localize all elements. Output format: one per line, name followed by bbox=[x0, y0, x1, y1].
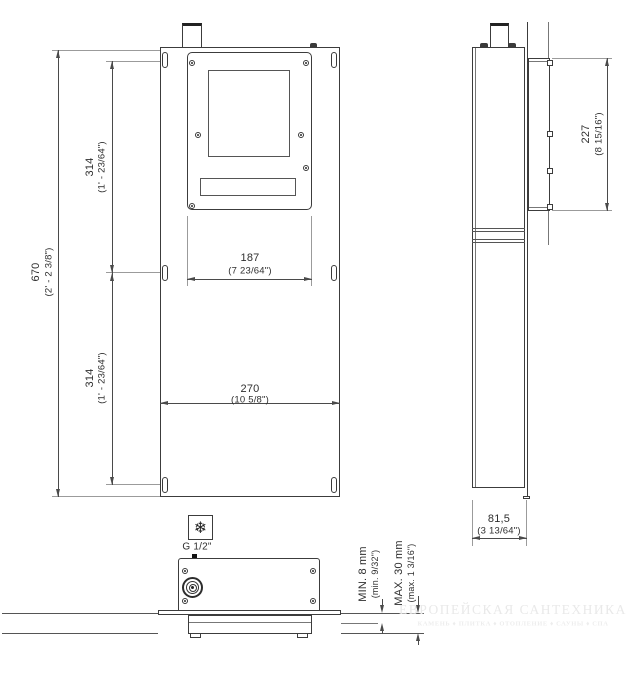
watermark-title: ЕВРОПЕЙСКАЯ САНТЕХНИКА bbox=[399, 602, 627, 618]
dim-arrow bbox=[605, 58, 609, 66]
technical-drawing-canvas: 670 (2' - 2 3/8") 314 (1' - 23/64") 314 … bbox=[0, 0, 643, 674]
plate-inner-line bbox=[529, 61, 549, 62]
dim-line-314-upper bbox=[112, 61, 113, 273]
mounting-slot bbox=[162, 265, 168, 281]
plate-inner-line bbox=[529, 207, 549, 208]
screw bbox=[195, 132, 201, 138]
dim-227-inch: (8 15/16") bbox=[594, 112, 605, 155]
body-joint-line bbox=[472, 228, 525, 229]
water-connection-fitting bbox=[182, 577, 203, 598]
fitting-inner-ring bbox=[189, 584, 197, 592]
fitting-center bbox=[191, 586, 195, 590]
connection-size-label: G 1/2" bbox=[182, 542, 211, 553]
screw bbox=[298, 132, 304, 138]
ext-line-upper-slot bbox=[106, 61, 160, 62]
ext-line-plate-right bbox=[311, 216, 312, 286]
dim-arrow bbox=[304, 277, 312, 281]
protrusion-inner-line bbox=[189, 622, 311, 623]
dim-min-inch: (min. 9/32") bbox=[370, 550, 380, 599]
body-side bbox=[472, 47, 525, 488]
screw bbox=[182, 568, 188, 574]
mounting-slot bbox=[331, 52, 337, 68]
dim-min-label: MIN. 8 mm bbox=[357, 546, 369, 602]
dim-arrow bbox=[380, 623, 384, 631]
dim-270-mm: 270 bbox=[241, 383, 260, 395]
dim-81-5-mm: 81,5 bbox=[488, 513, 510, 525]
body-joint-line bbox=[472, 231, 525, 232]
wall-line-front bbox=[2, 613, 158, 614]
dim-670-mm: 670 bbox=[30, 263, 42, 282]
dim-81-5-inch: (3 13/64") bbox=[477, 526, 520, 537]
dim-314-lower-inch: (1' - 23/64") bbox=[97, 352, 108, 404]
mounting-slot bbox=[331, 265, 337, 281]
screw bbox=[303, 165, 309, 171]
screw bbox=[189, 203, 195, 209]
dim-arrow bbox=[110, 265, 114, 273]
body-joint-line bbox=[472, 239, 525, 240]
protrusion-foot bbox=[190, 633, 201, 638]
ext-line-plate-bottom bbox=[552, 210, 612, 211]
dim-arrow bbox=[605, 203, 609, 211]
dim-line-227 bbox=[607, 58, 608, 211]
dim-arrow bbox=[187, 277, 195, 281]
clip-tab bbox=[547, 60, 553, 66]
dim-187-inch: (7 23/64") bbox=[228, 266, 271, 277]
dim-arrow bbox=[416, 633, 420, 641]
screw bbox=[310, 598, 316, 604]
clip-tab bbox=[547, 131, 553, 137]
watermark-subtitle: КАМЕНЬ ♦ ПЛИТКА ♦ ОТОПЛЕНИЕ ♦ САУНЫ ♦ СП… bbox=[418, 621, 609, 628]
mounting-slot bbox=[162, 52, 168, 68]
mounting-slot bbox=[162, 477, 168, 493]
dim-arrow bbox=[110, 61, 114, 69]
ext-line-bottom bbox=[52, 496, 160, 497]
ext-line-top bbox=[52, 50, 160, 51]
inspection-window bbox=[208, 70, 290, 157]
dim-arrow bbox=[56, 50, 60, 58]
body-top-tab bbox=[508, 43, 516, 47]
dim-arrow bbox=[56, 489, 60, 497]
dim-line-314-lower bbox=[112, 273, 113, 485]
screw bbox=[303, 60, 309, 66]
dim-314-upper-inch: (1' - 23/64") bbox=[97, 141, 108, 193]
wall-line-foot bbox=[523, 496, 530, 499]
dim-line-max-tail bbox=[418, 641, 419, 645]
ext-line-plate-top bbox=[552, 58, 612, 59]
plate-protrusion bbox=[188, 615, 312, 634]
screw bbox=[189, 60, 195, 66]
dim-arrow bbox=[110, 273, 114, 281]
dim-arrow bbox=[380, 605, 384, 613]
wall-line-min bbox=[341, 623, 378, 624]
dim-227-mm: 227 bbox=[580, 125, 592, 144]
dim-line-670 bbox=[58, 50, 59, 497]
dim-line-187 bbox=[187, 279, 312, 280]
dim-270-inch: (10 5/8") bbox=[231, 395, 269, 406]
dim-line-min-tail bbox=[382, 631, 383, 634]
lower-slot-opening bbox=[200, 178, 296, 196]
dim-314-lower-mm: 314 bbox=[84, 369, 96, 388]
ext-line-middle-slot bbox=[106, 272, 166, 273]
ext-line-plate-left bbox=[187, 216, 188, 286]
dim-max-inch: (max. 1 3/16") bbox=[406, 543, 416, 602]
body-joint-line bbox=[472, 242, 525, 243]
dim-max-label: MAX. 30 mm bbox=[393, 540, 405, 606]
screw bbox=[310, 568, 316, 574]
clip-tab bbox=[547, 168, 553, 174]
snowflake-icon: ❄ bbox=[194, 520, 207, 536]
fitting-ring bbox=[186, 581, 199, 594]
dim-arrow bbox=[110, 477, 114, 485]
top-edge-screw bbox=[310, 43, 317, 47]
dim-314-upper-mm: 314 bbox=[84, 158, 96, 177]
pipe-stub-side bbox=[490, 23, 509, 48]
mounting-slot bbox=[331, 477, 337, 493]
body-top-tab bbox=[480, 43, 488, 47]
ext-line-lower-slot bbox=[106, 484, 162, 485]
dim-187-mm: 187 bbox=[241, 252, 260, 264]
screw bbox=[182, 598, 188, 604]
pipe-stub bbox=[182, 23, 202, 48]
dim-arrow bbox=[332, 401, 340, 405]
dim-arrow bbox=[160, 401, 168, 405]
body-inner-edge bbox=[475, 48, 476, 487]
wall-line-back bbox=[2, 633, 158, 634]
dim-670-inch: (2' - 2 3/8") bbox=[44, 248, 55, 297]
cold-water-symbol-box: ❄ bbox=[188, 515, 213, 540]
protrusion-foot bbox=[297, 633, 308, 638]
